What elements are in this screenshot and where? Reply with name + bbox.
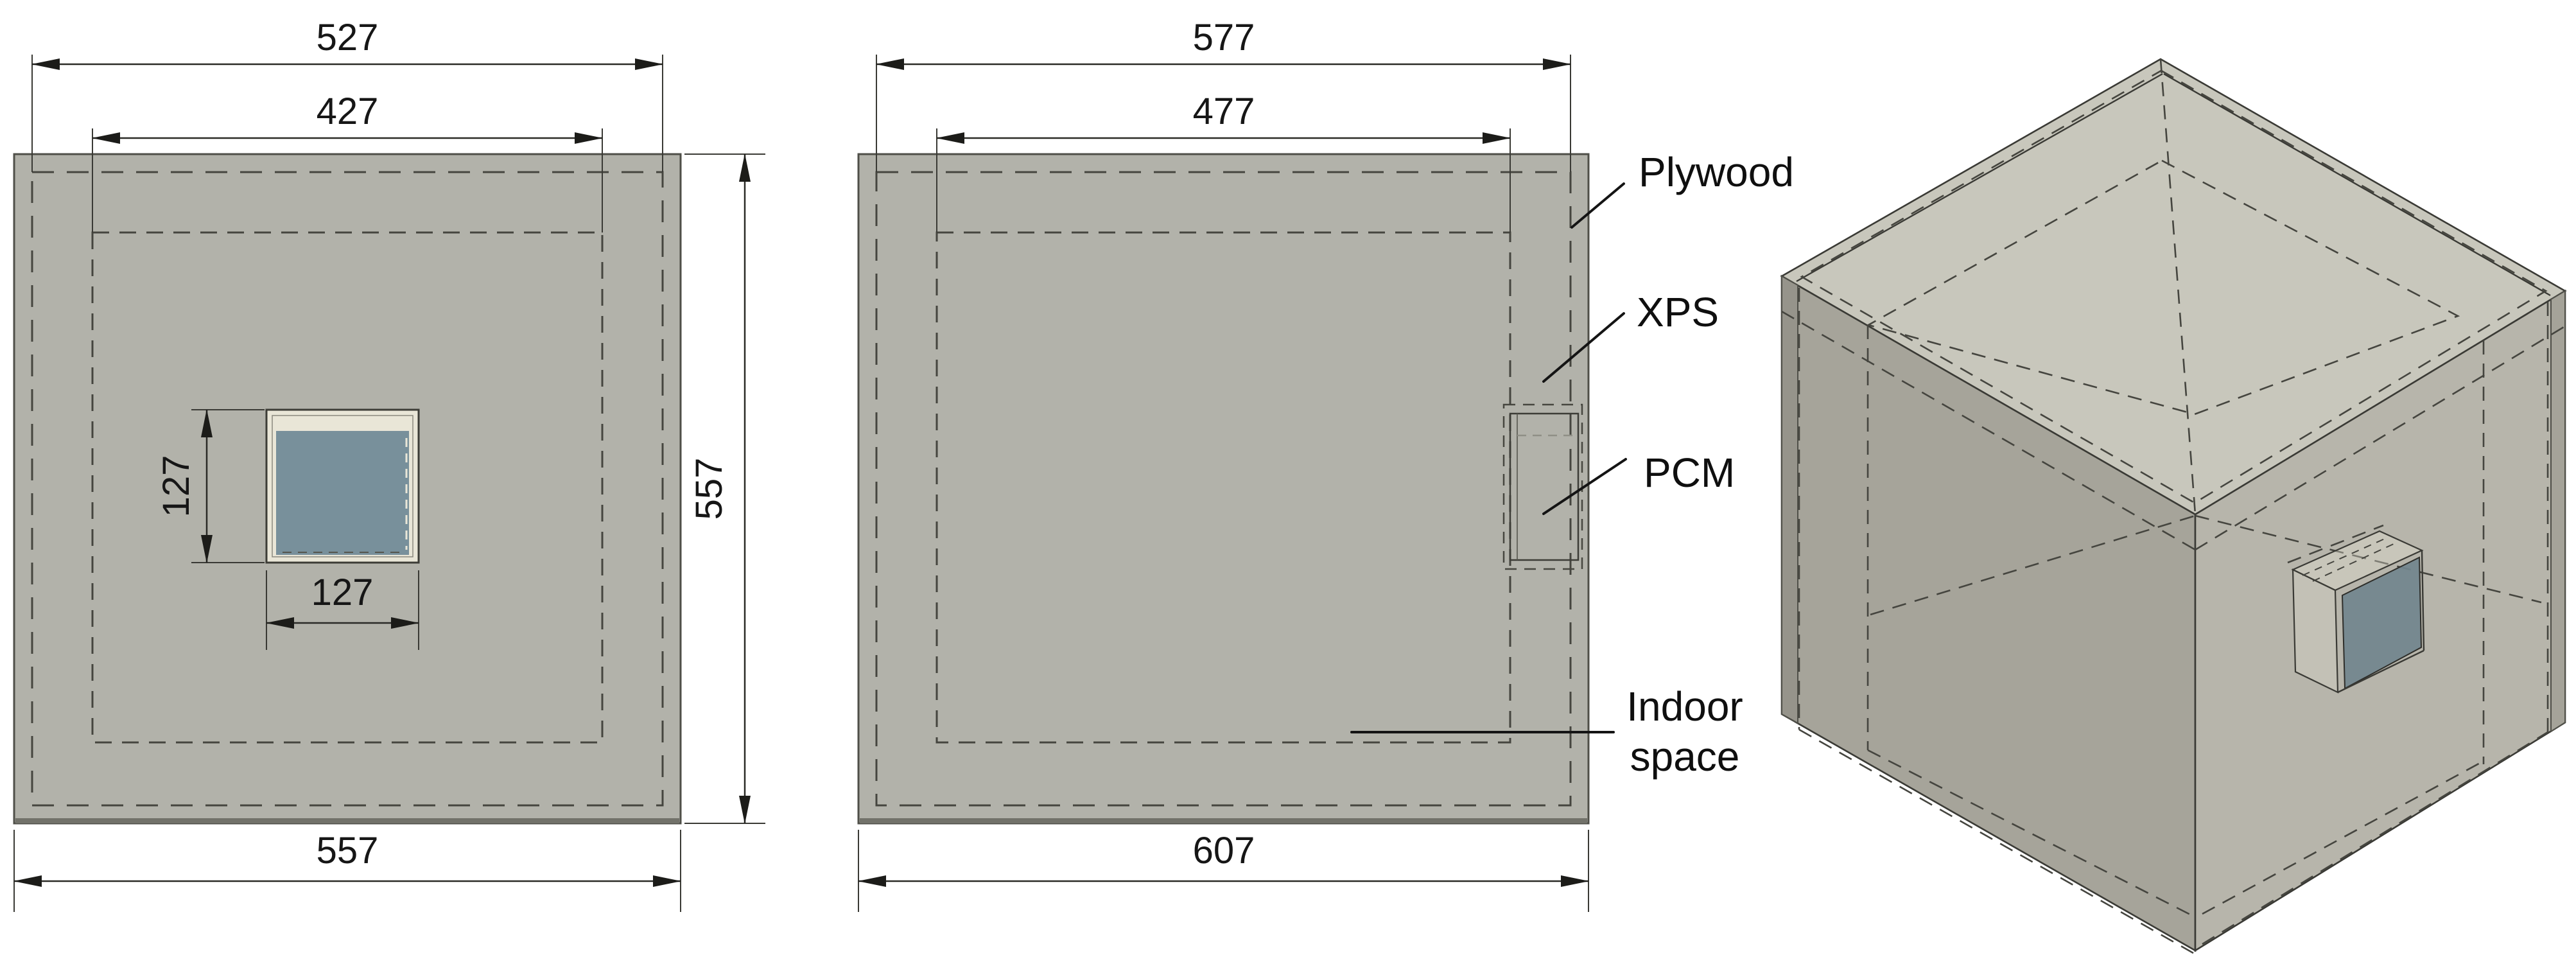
figure-canvas: 527 427 557 557 127 (0, 0, 2576, 955)
dim-text-577: 577 (1193, 17, 1255, 58)
pcm-label: PCM (1644, 450, 1735, 496)
plywood-label: Plywood (1639, 149, 1794, 195)
dim-text-477: 477 (1193, 91, 1255, 132)
front-pcm-box (266, 410, 419, 563)
iso-pcm-left-face (2293, 570, 2338, 692)
isometric-view (1782, 59, 2565, 953)
side-panel (858, 154, 1588, 823)
dim-side-bottom: 607 (858, 830, 1588, 912)
pcm-fill-blue (276, 431, 409, 555)
indoor-space-label-line1: Indoor (1626, 683, 1743, 730)
dim-text-527: 527 (317, 17, 379, 58)
front-view: 527 427 557 557 127 (14, 17, 765, 912)
iso-right-edge-sliver (2551, 291, 2565, 732)
indoor-space-label-line2: space (1630, 733, 1740, 780)
iso-left-edge-sliver (1782, 276, 1798, 723)
front-panel-bottom-edge (15, 818, 679, 823)
dim-text-557-vertical: 557 (688, 458, 730, 520)
dim-text-127-horizontal: 127 (311, 572, 374, 613)
dim-text-557-bottom: 557 (317, 830, 379, 872)
side-view: 577 477 607 Plywood XPS PCM Indoor spac (858, 17, 1794, 912)
dim-text-427: 427 (317, 91, 379, 132)
side-panel-bottom-edge (860, 818, 1587, 823)
dim-front-bottom: 557 (14, 830, 681, 912)
dim-text-127-vertical: 127 (155, 455, 197, 518)
dim-front-height: 557 (684, 154, 765, 823)
technical-drawing: 527 427 557 557 127 (0, 0, 2576, 955)
xps-label: XPS (1637, 289, 1719, 335)
dim-text-607: 607 (1193, 830, 1255, 872)
